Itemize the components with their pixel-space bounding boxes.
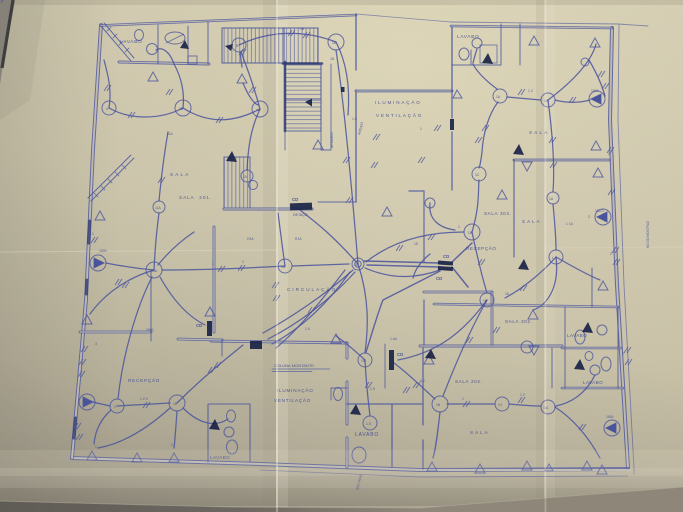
svg-text:2: 2 (610, 252, 612, 256)
svg-text:1A: 1A (281, 265, 286, 269)
svg-text:VENTILAÇÃO: VENTILAÇÃO (376, 112, 423, 118)
svg-text:1.5: 1.5 (366, 422, 371, 426)
svg-text:H1A: H1A (247, 237, 254, 241)
svg-text:1500: 1500 (606, 415, 614, 419)
svg-text:1500: 1500 (99, 249, 107, 253)
svg-text:SALA 202.: SALA 202. (455, 379, 482, 384)
svg-text:1: 1 (458, 225, 460, 229)
svg-text:11A: 11A (155, 206, 162, 210)
svg-text:1: 1 (95, 445, 97, 449)
svg-text:1A: 1A (549, 197, 554, 201)
svg-text:LAVABO: LAVABO (355, 432, 379, 438)
svg-text:4A: 4A (256, 108, 261, 112)
svg-text:SALA: SALA (529, 130, 550, 135)
svg-text:NO DO MOSTRAD: NO DO MOSTRAD (646, 220, 650, 248)
svg-text:R1A: R1A (295, 237, 302, 241)
svg-text:1500: 1500 (591, 89, 599, 93)
svg-text:1 1A: 1 1A (566, 222, 574, 226)
svg-text:CD: CD (196, 323, 202, 328)
svg-text:1 2 3: 1 2 3 (140, 397, 148, 401)
svg-text:SALA 201.: SALA 201. (179, 195, 212, 200)
svg-text:RECEPÇÃO: RECEPÇÃO (466, 245, 497, 251)
svg-text:V1: V1 (498, 403, 502, 407)
svg-text:ILUMINAÇÃO: ILUMINAÇÃO (277, 387, 314, 393)
svg-text:16: 16 (354, 263, 358, 267)
svg-text:4B: 4B (179, 107, 184, 111)
svg-text:1.5: 1.5 (352, 117, 357, 121)
svg-text:1.5: 1.5 (305, 327, 310, 331)
svg-text:1: 1 (420, 127, 422, 131)
svg-text:1: 1 (462, 397, 464, 401)
svg-text:15: 15 (414, 242, 418, 246)
svg-text:LAVABO: LAVABO (583, 380, 603, 385)
svg-text:SALA: SALA (522, 219, 542, 224)
svg-text:L: L (552, 256, 554, 260)
svg-text:COLUNA MONTANTE.: COLUNA MONTANTE. (274, 363, 315, 368)
svg-text:SALA 302.: SALA 302. (505, 319, 532, 324)
svg-text:18: 18 (505, 292, 509, 296)
svg-text:SALA: SALA (470, 430, 490, 435)
svg-text:1: 1 (92, 232, 94, 236)
svg-text:SALA: SALA (170, 172, 191, 177)
svg-text:SALA 304.: SALA 304. (484, 211, 511, 216)
svg-text:1: 1 (212, 262, 214, 266)
svg-text:1 2: 1 2 (520, 393, 525, 397)
svg-text:1A: 1A (361, 359, 366, 363)
svg-text:CD: CD (397, 352, 403, 357)
svg-text:11A: 11A (167, 132, 174, 136)
svg-text:2: 2 (622, 352, 624, 356)
svg-text:1.5: 1.5 (370, 387, 375, 391)
svg-text:ARMARIO: ARMARIO (330, 132, 334, 148)
svg-text:1A: 1A (332, 41, 337, 45)
svg-text:1: 1 (242, 260, 244, 264)
svg-text:18: 18 (173, 402, 177, 406)
svg-text:CD: CD (436, 276, 442, 281)
svg-text:1B: 1B (330, 57, 335, 61)
svg-text:LAVABO: LAVABO (120, 39, 143, 44)
svg-text:LAVABO: LAVABO (457, 34, 480, 39)
svg-text:1C: 1C (475, 173, 480, 177)
svg-text:VENTILAÇÃO: VENTILAÇÃO (274, 397, 311, 403)
svg-text:2: 2 (608, 152, 610, 156)
svg-text:1.A0: 1.A0 (390, 337, 397, 341)
svg-text:1: 1 (114, 405, 116, 409)
svg-text:RECEPÇÃO: RECEPÇÃO (128, 377, 160, 383)
svg-text:150.0: 150.0 (595, 209, 604, 213)
svg-text:14A: 14A (151, 269, 158, 273)
svg-text:1A: 1A (496, 95, 501, 99)
svg-text:1B: 1B (468, 231, 473, 235)
svg-text:ILUMINAÇÃO: ILUMINAÇÃO (375, 99, 422, 105)
svg-text:1B: 1B (436, 403, 441, 407)
svg-text:1B: 1B (483, 299, 488, 303)
svg-text:15: 15 (243, 175, 247, 179)
svg-text:DETAÇO: DETAÇO (293, 213, 308, 217)
svg-text:4: 4 (106, 107, 108, 111)
svg-text:CIRCULAÇÃO: CIRCULAÇÃO (287, 286, 337, 292)
svg-text:3: 3 (95, 342, 97, 346)
svg-text:2: 2 (588, 215, 590, 219)
svg-text:1: 1 (171, 443, 173, 447)
svg-text:CD: CD (292, 197, 298, 202)
svg-text:1 2: 1 2 (528, 89, 533, 93)
svg-text:CD: CD (443, 254, 449, 259)
svg-text:A 2: A 2 (420, 379, 425, 383)
svg-text:1500: 1500 (146, 328, 154, 332)
svg-text:LAVABO: LAVABO (567, 333, 587, 338)
svg-text:1B: 1B (300, 27, 305, 31)
